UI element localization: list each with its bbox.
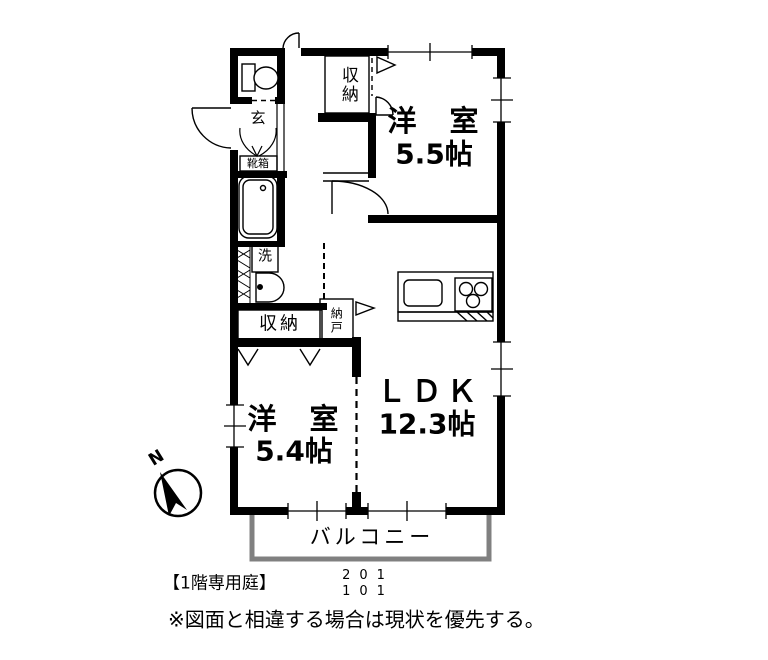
toilet-icon: [242, 64, 278, 91]
compass-icon: [155, 470, 201, 516]
room-54-size: 5.4帖: [255, 436, 333, 465]
entrance-floor-arcs: [240, 128, 276, 156]
hatch-strip: [237, 245, 250, 304]
nando-label: 納戸: [330, 307, 343, 335]
garden-note: 【1階専用庭】: [163, 569, 276, 594]
toilet-tank: [242, 64, 255, 91]
closet55-door-triangle: [377, 57, 395, 73]
room-55-name: 洋 室: [387, 106, 480, 136]
kitchen: [398, 272, 493, 321]
shelf-hatch: [457, 312, 493, 321]
entrance-step-lines: [277, 104, 284, 171]
shoebox-label: 靴箱: [247, 158, 269, 170]
room-ldk-name: ＬＤＫ: [377, 376, 482, 408]
toilet-bowl: [254, 67, 278, 89]
washer-label: 洗: [258, 250, 272, 265]
window-top: [388, 43, 472, 61]
unit-number-201: 201: [342, 569, 394, 583]
sink-icon: [256, 273, 284, 302]
kitchen-sink: [404, 280, 442, 306]
room-54-name: 洋 室: [247, 404, 340, 434]
unit-number-101: 101: [342, 585, 394, 599]
closet54-door-v1: [238, 349, 258, 365]
closet-lower-label: 収納: [259, 316, 301, 335]
entrance-label: 玄: [250, 111, 265, 127]
floorplan: 洋 室 5.5帖 洋 室 5.4帖 ＬＤＫ 12.3帖 収納 玄 靴箱 洗 収納…: [0, 0, 768, 660]
top-door-arc: [283, 33, 299, 48]
closet-top-label: 収納: [338, 66, 356, 104]
burner-2: [475, 283, 488, 296]
burner-1: [460, 283, 473, 296]
floorplan-svg: [0, 0, 768, 660]
closet54-door-v2: [300, 349, 320, 365]
room-ldk-size: 12.3帖: [378, 409, 475, 438]
bathtub-icon: [239, 176, 277, 238]
balcony-label: バルコニー: [310, 526, 435, 548]
burner-3: [467, 295, 480, 308]
entrance-door-arc: [192, 108, 231, 148]
nando-door-triangle: [356, 302, 374, 315]
room-55-size: 5.5帖: [395, 139, 473, 168]
ldk-door-lintel: [323, 173, 369, 181]
disclaimer-note: ※図面と相違する場合は現状を優先する。: [168, 604, 545, 633]
balcony-door-post: [354, 507, 361, 514]
ldk-door-arc: [332, 181, 388, 214]
